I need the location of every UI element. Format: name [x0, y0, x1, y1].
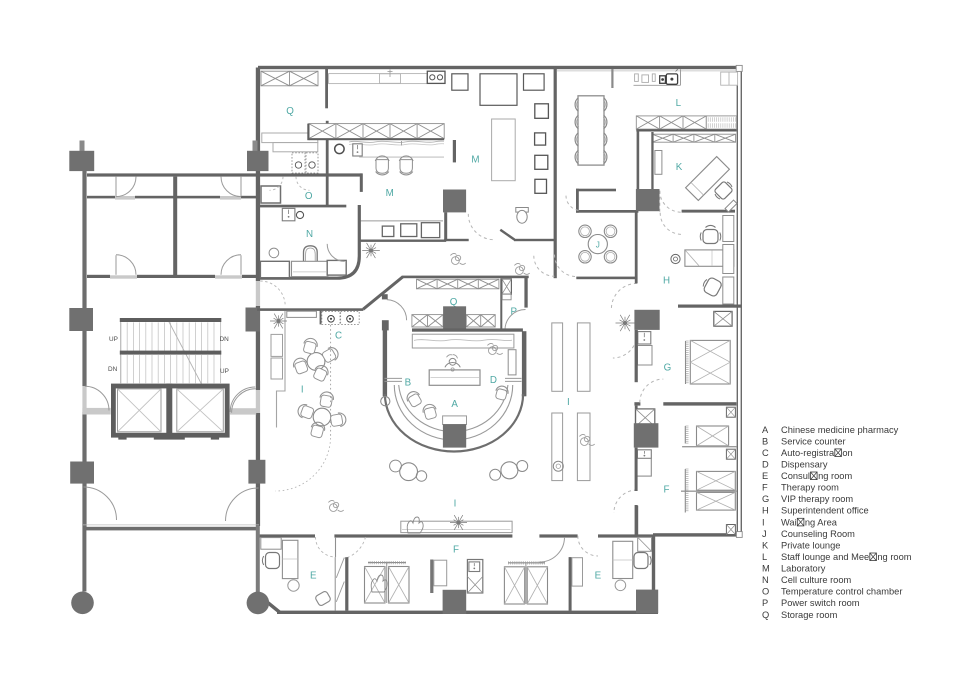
svg-text:F: F — [453, 544, 459, 555]
svg-text:I: I — [762, 517, 765, 527]
svg-text:P: P — [762, 598, 768, 608]
svg-text:I: I — [567, 397, 570, 408]
svg-text:Q: Q — [286, 106, 294, 117]
svg-text:Therapy room: Therapy room — [781, 483, 839, 493]
svg-text:G: G — [664, 363, 672, 374]
svg-text:D: D — [762, 460, 769, 470]
svg-text:G: G — [762, 494, 769, 504]
svg-text:C: C — [762, 448, 769, 458]
svg-text:E: E — [595, 570, 602, 581]
svg-text:M: M — [386, 188, 394, 199]
svg-text:Wai: Wai — [781, 517, 797, 527]
svg-text:L: L — [676, 98, 682, 109]
svg-text:Power switch room: Power switch room — [781, 598, 860, 608]
svg-text:H: H — [762, 506, 769, 516]
svg-text:J: J — [596, 240, 600, 249]
svg-text:H: H — [663, 276, 670, 287]
svg-text:Storage room: Storage room — [781, 610, 838, 620]
svg-text:Superintendent office: Superintendent office — [781, 506, 869, 516]
svg-text:Chinese medicine pharmacy: Chinese medicine pharmacy — [781, 425, 899, 435]
svg-text:F: F — [762, 483, 768, 493]
svg-text:B: B — [762, 436, 768, 446]
svg-text:Laboratory: Laboratory — [781, 564, 826, 574]
svg-text:DN: DN — [220, 336, 230, 343]
svg-text:Q: Q — [450, 297, 458, 308]
svg-text:M: M — [762, 564, 770, 574]
svg-text:I: I — [301, 385, 304, 396]
svg-text:P: P — [511, 306, 518, 317]
svg-text:Dispensary: Dispensary — [781, 460, 828, 470]
svg-text:on: on — [842, 448, 852, 458]
svg-text:J: J — [762, 529, 767, 539]
svg-text:M: M — [471, 155, 479, 166]
svg-text:Auto-registra: Auto-registra — [781, 448, 835, 458]
svg-text:Staff lounge and Mee: Staff lounge and Mee — [781, 552, 869, 562]
svg-text:Consul: Consul — [781, 471, 810, 481]
svg-text:Service counter: Service counter — [781, 436, 846, 446]
svg-text:B: B — [405, 377, 412, 388]
svg-text:E: E — [310, 570, 317, 581]
svg-text:D: D — [490, 375, 497, 386]
svg-text:C: C — [335, 331, 342, 342]
svg-text:Private lounge: Private lounge — [781, 540, 840, 550]
svg-text:A: A — [762, 425, 769, 435]
svg-text:N: N — [306, 229, 313, 240]
svg-text:N: N — [762, 575, 769, 585]
svg-text:A: A — [451, 399, 458, 410]
svg-text:Q: Q — [762, 610, 769, 620]
svg-text:L: L — [762, 552, 767, 562]
svg-text:ng room: ng room — [877, 552, 911, 562]
svg-text:Temperature control chamber: Temperature control chamber — [781, 587, 902, 597]
svg-text:Counseling Room: Counseling Room — [781, 529, 855, 539]
svg-text:ng Area: ng Area — [805, 517, 838, 527]
svg-text:DN: DN — [108, 366, 118, 373]
svg-text:K: K — [676, 162, 683, 173]
svg-text:O: O — [762, 587, 769, 597]
svg-text:ng room: ng room — [818, 471, 852, 481]
svg-text:UP: UP — [220, 368, 229, 375]
svg-text:I: I — [454, 499, 457, 510]
svg-text:UP: UP — [109, 336, 118, 343]
svg-text:O: O — [305, 191, 313, 202]
svg-text:K: K — [762, 540, 769, 550]
svg-text:F: F — [664, 484, 670, 495]
svg-text:VIP therapy room: VIP therapy room — [781, 494, 853, 504]
svg-text:Cell culture room: Cell culture room — [781, 575, 852, 585]
svg-text:E: E — [762, 471, 768, 481]
